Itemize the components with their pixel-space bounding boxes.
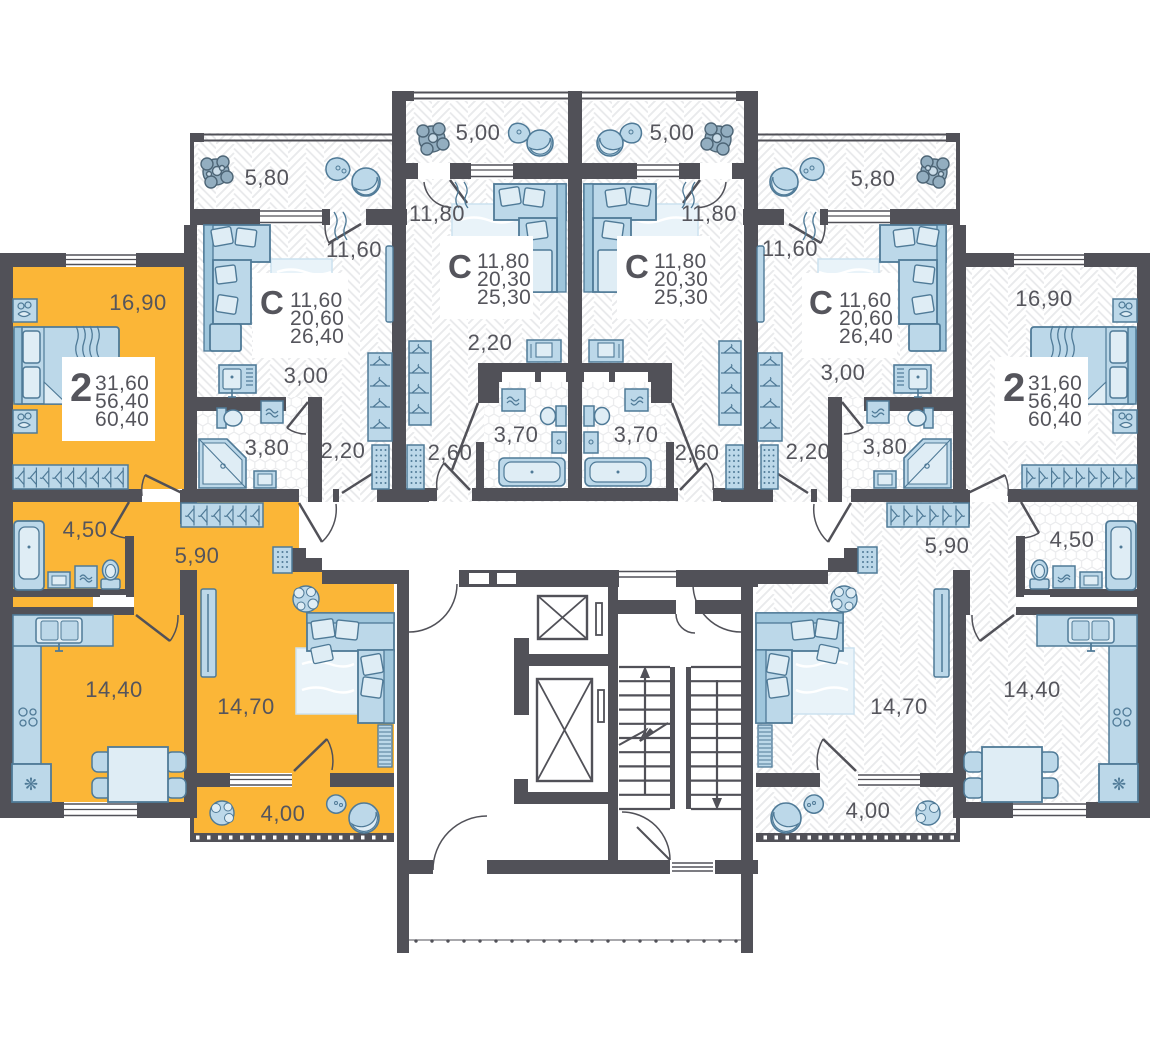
svg-text:C: C xyxy=(809,284,833,321)
svg-text:25,30: 25,30 xyxy=(654,286,708,309)
svg-text:2,60: 2,60 xyxy=(428,440,473,465)
svg-text:3,70: 3,70 xyxy=(494,422,539,447)
svg-text:❋: ❋ xyxy=(24,775,38,794)
svg-text:14,40: 14,40 xyxy=(85,677,143,702)
svg-text:11,80: 11,80 xyxy=(409,201,465,226)
svg-text:3,70: 3,70 xyxy=(614,422,659,447)
svg-text:60,40: 60,40 xyxy=(95,408,149,431)
svg-text:14,70: 14,70 xyxy=(217,694,275,719)
svg-text:16,90: 16,90 xyxy=(109,290,167,315)
svg-text:2: 2 xyxy=(70,366,92,410)
svg-text:5,90: 5,90 xyxy=(925,533,970,558)
svg-text:26,40: 26,40 xyxy=(839,325,893,348)
svg-text:5,00: 5,00 xyxy=(650,120,695,145)
svg-text:5,90: 5,90 xyxy=(175,543,220,568)
svg-text:3,80: 3,80 xyxy=(863,434,908,459)
svg-text:14,40: 14,40 xyxy=(1003,677,1061,702)
svg-text:C: C xyxy=(448,248,472,285)
svg-text:2,20: 2,20 xyxy=(321,438,366,463)
svg-text:4,50: 4,50 xyxy=(1050,527,1095,552)
svg-text:25,30: 25,30 xyxy=(477,286,531,309)
svg-text:5,80: 5,80 xyxy=(245,165,290,190)
svg-text:11,80: 11,80 xyxy=(681,201,737,226)
svg-text:2,20: 2,20 xyxy=(468,330,513,355)
svg-text:5,80: 5,80 xyxy=(851,166,896,191)
svg-text:3,80: 3,80 xyxy=(245,435,290,460)
svg-text:4,00: 4,00 xyxy=(261,801,306,826)
svg-text:26,40: 26,40 xyxy=(290,325,344,348)
svg-text:3,00: 3,00 xyxy=(821,360,866,385)
svg-text:2,20: 2,20 xyxy=(786,439,831,464)
svg-text:2,60: 2,60 xyxy=(675,440,720,465)
svg-text:C: C xyxy=(625,248,649,285)
svg-text:2: 2 xyxy=(1003,366,1025,410)
svg-text:11,60: 11,60 xyxy=(762,236,818,261)
svg-text:14,70: 14,70 xyxy=(870,694,928,719)
svg-text:11,60: 11,60 xyxy=(326,237,382,262)
svg-text:5,00: 5,00 xyxy=(456,120,501,145)
svg-text:C: C xyxy=(260,284,284,321)
svg-text:60,40: 60,40 xyxy=(1028,408,1082,431)
svg-text:16,90: 16,90 xyxy=(1015,286,1073,311)
svg-text:3,00: 3,00 xyxy=(284,363,329,388)
svg-text:4,50: 4,50 xyxy=(63,517,108,542)
svg-text:4,00: 4,00 xyxy=(846,798,891,823)
